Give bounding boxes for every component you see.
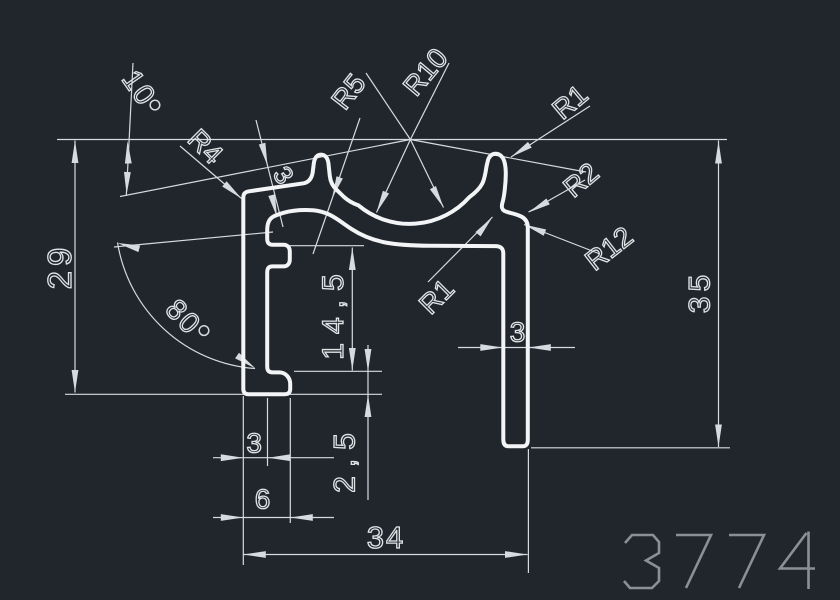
svg-text:3: 3 xyxy=(510,317,526,348)
svg-text:35: 35 xyxy=(684,270,717,313)
svg-text:3: 3 xyxy=(246,428,262,459)
svg-text:2,5: 2,5 xyxy=(329,424,362,493)
svg-text:14,5: 14,5 xyxy=(317,265,350,359)
svg-text:34: 34 xyxy=(367,520,405,555)
svg-text:6: 6 xyxy=(255,484,271,515)
svg-text:29: 29 xyxy=(41,243,78,290)
